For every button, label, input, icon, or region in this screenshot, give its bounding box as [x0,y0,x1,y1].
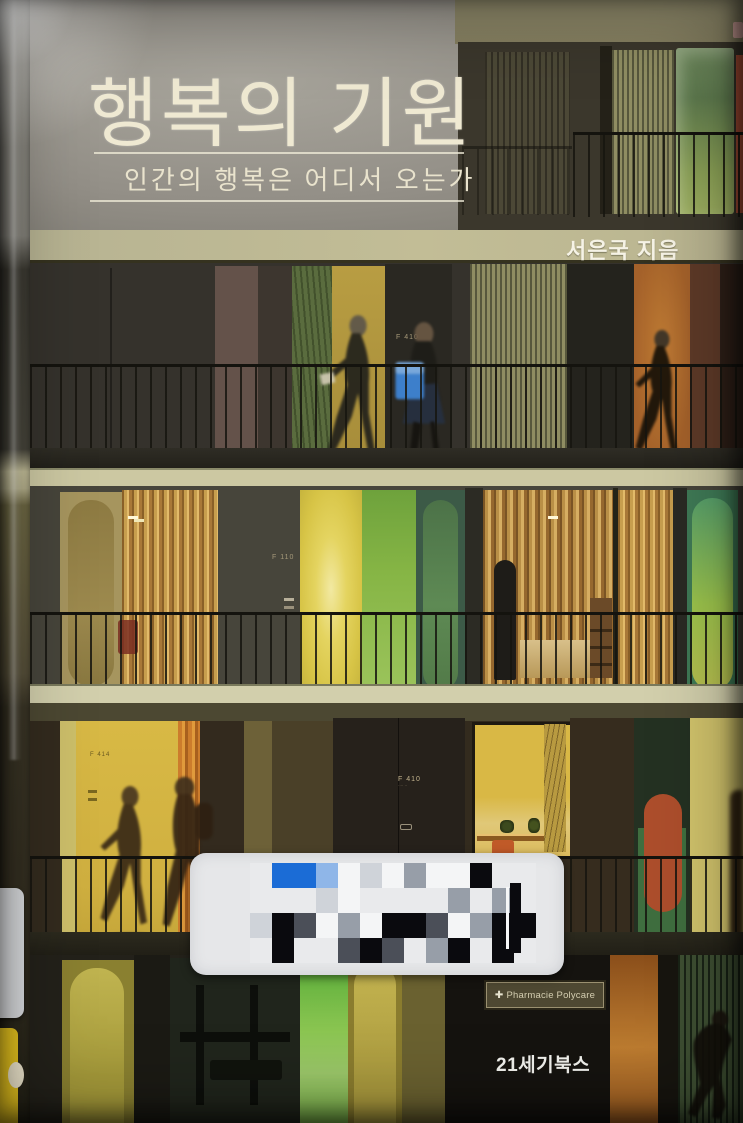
mosaic-cell [404,913,426,938]
mosaic-cell [470,863,492,888]
mosaic-cell [338,938,360,963]
publisher-logo: 21세기북스 [496,1050,590,1077]
mosaic-black-bar [510,883,521,953]
sticker-circle-mark [8,1062,24,1088]
mosaic-cell [250,888,272,913]
mosaic-cell [426,938,448,963]
interior-bench [210,1060,282,1080]
facade-panel-orange2 [610,955,658,1123]
mosaic-cell [272,888,294,913]
book-cover-photo: 행복의 기원 인간의 행복은 어디서 오는가 서은국 지음 F 410 [0,0,743,1123]
pink-speck [733,22,743,38]
mosaic-cell [294,863,316,888]
pharmacy-sign-text: Pharmacie Polycare [506,990,595,1001]
interior-plant [500,820,514,833]
door-label-floor4-main: F 410 ···· ·· [398,776,421,789]
interior-plant [528,818,540,833]
subtitle-underline [90,200,464,202]
floor2-railing [30,364,743,453]
ceiling-light [128,516,138,519]
floor3-railing [30,612,743,689]
mosaic-cell [470,938,492,963]
mosaic-cell [360,863,382,888]
mosaic-cell [360,913,382,938]
interior-machine-post [196,985,204,1105]
mosaic-cell [404,938,426,963]
door-handle [400,824,412,830]
mosaic-cell [294,938,316,963]
ceiling-light [548,516,558,519]
mosaic-cell [426,913,448,938]
facade-panel [658,955,678,1123]
pharmacy-cross-icon: ✚ [495,990,504,1001]
mosaic-cell [250,913,272,938]
door-label-floor4-left: F 414 [90,752,110,759]
mosaic-cell [360,888,382,913]
mosaic-cell [294,913,316,938]
storefront-dark [445,955,610,1123]
mosaic-cell [250,863,272,888]
mosaic-cell [448,888,470,913]
mosaic-white-slit [506,887,509,949]
interior-pillar-branches [544,724,566,852]
top-right-olive-band [455,0,743,44]
panel-blob [70,968,124,1123]
floor2-walkway [30,448,743,470]
mosaic-cell [316,888,338,913]
top-right-railing [573,132,743,217]
mosaic-cell [272,863,294,888]
mosaic-cell [448,938,470,963]
mosaic-cell [338,913,360,938]
author-name: 서은국 지음 [566,233,679,265]
mosaic-cell [316,863,338,888]
slab-band [30,684,743,705]
mosaic-cell [338,863,360,888]
book-subtitle: 인간의 행복은 어디서 오는가 [124,160,476,197]
facade-panel [134,955,170,1123]
interior-machine-bar [180,1032,290,1042]
mosaic-cell [470,888,492,913]
door-label-text: F 410 [398,776,421,783]
mosaic-cell [316,938,338,963]
library-barcode-sticker [190,853,564,975]
mosaic-cell [448,863,470,888]
person-silhouette-hunched [676,1000,743,1123]
slab-band [30,468,743,488]
door-label-floor3: F 110 [272,554,294,562]
mosaic-cell [382,863,404,888]
mosaic-cell [338,888,360,913]
mosaic-cell [382,938,404,963]
title-underline [94,152,464,154]
mosaic-cell [272,938,294,963]
mosaic-cell [404,888,426,913]
door-label-subtext: ···· ·· [398,784,421,789]
mosaic-cell [382,888,404,913]
facade-panel-olive [402,958,445,1123]
mosaic-cell [250,938,272,963]
top-right-railing-faint [462,146,572,215]
facade-panel-brightgreen [300,958,348,1123]
pharmacy-sign: ✚ Pharmacie Polycare [486,982,604,1008]
door-handle [284,598,294,601]
mosaic-cell [382,913,404,938]
mosaic-cell [470,913,492,938]
panel-blob [354,964,396,1123]
mosaic-cell [294,888,316,913]
mosaic-cell [272,913,294,938]
interior-chair [492,840,514,854]
spine-sticker-white [0,888,24,1018]
mosaic-cell [360,938,382,963]
spine-glare [8,0,22,760]
mosaic-cell [316,913,338,938]
mosaic-cell [404,863,426,888]
mosaic-cell [426,888,448,913]
spine-call-number-sticker [0,1028,18,1123]
book-title: 행복의 기원 [88,52,475,162]
mosaic-cell [426,863,448,888]
mosaic-cell [448,913,470,938]
